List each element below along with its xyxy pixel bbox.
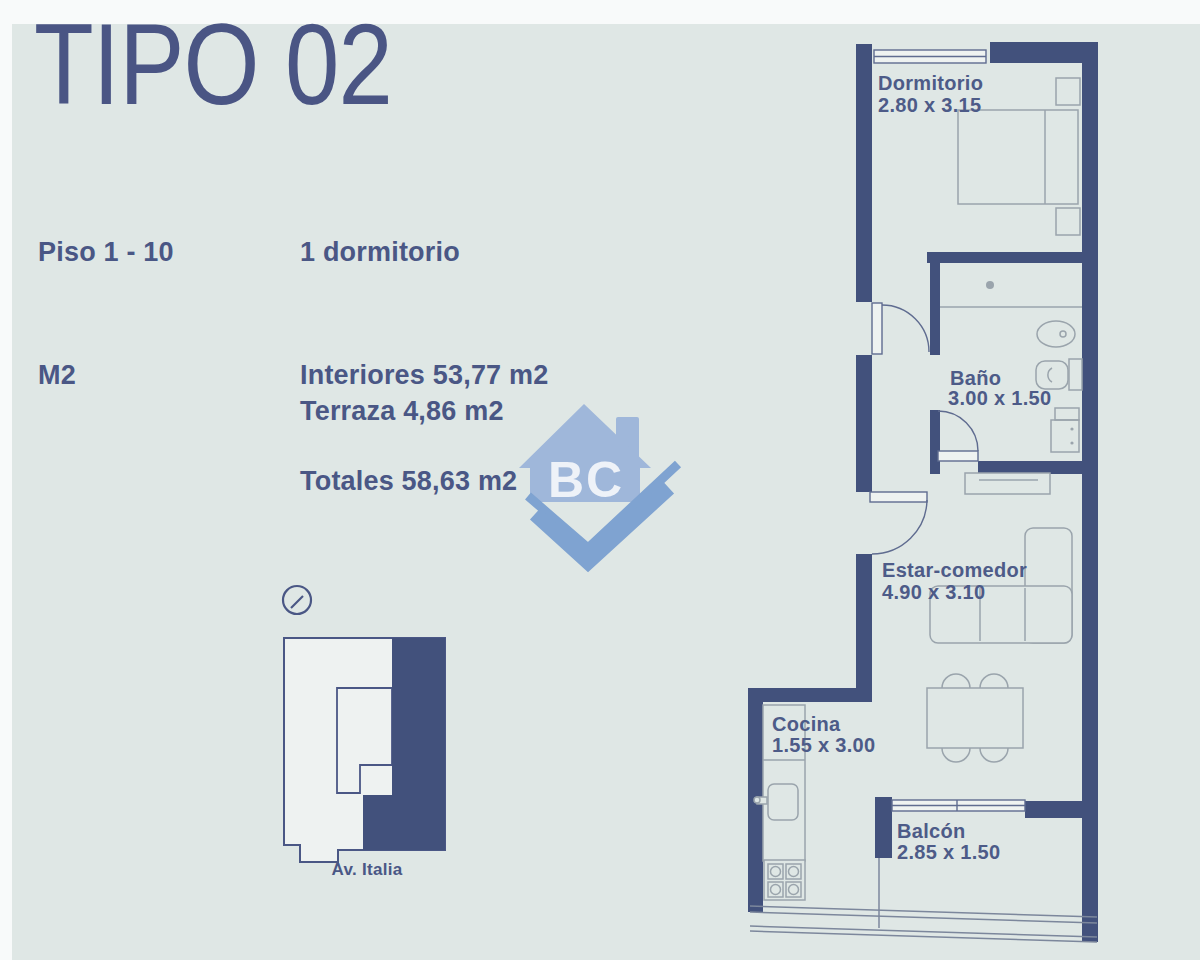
burner-ring [771, 867, 781, 877]
toilet-detail [1048, 368, 1052, 382]
nightstand [1056, 78, 1080, 105]
door-arc-entry [872, 500, 927, 554]
wall-bath-bottom [978, 461, 1082, 474]
doors [870, 303, 978, 554]
label-balcon: Balcón [897, 820, 965, 842]
floor-plan: Dormitorio 2.80 x 3.15 Baño 3.00 x 1.50 … [748, 42, 1098, 942]
label-estar: Estar-comedor [882, 559, 1027, 581]
burner-ring [789, 885, 799, 895]
vanity [1051, 420, 1079, 452]
burner-ring [771, 885, 781, 895]
vanity-knob [1070, 427, 1073, 430]
door-leaf-bano [938, 451, 978, 461]
floorplan-page: { "header": { "title": "TIPO 02" }, "spe… [0, 0, 1200, 960]
wall-balcon-right [1025, 801, 1082, 818]
vanity-shelf [1055, 408, 1079, 420]
wall-cocina-top [748, 688, 872, 702]
wall-top [990, 42, 1098, 63]
wall-balcon-left-stub [875, 797, 892, 858]
logo-letters: BC [548, 452, 624, 508]
drawings-layer: BC [0, 0, 1200, 960]
wall-left-hall [856, 355, 872, 492]
sink-faucet-base [754, 797, 760, 803]
door-leaf-entry [870, 492, 927, 502]
bc-logo: BC [519, 404, 678, 562]
bed [958, 110, 1078, 204]
door-leaf-dormitorio [872, 303, 882, 354]
label-balcon-dims: 2.85 x 1.50 [897, 841, 1000, 863]
bidet-detail [1060, 331, 1066, 337]
label-dormitorio-dims: 2.80 x 3.15 [878, 94, 981, 116]
bidet [1037, 321, 1075, 347]
label-bano: Baño [950, 367, 1001, 389]
toilet-bowl [1036, 361, 1068, 389]
north-compass-icon [283, 586, 311, 614]
shower-drain-icon [986, 281, 994, 289]
north-compass-needle [291, 596, 303, 608]
wall-left-dormitorio [856, 44, 872, 302]
vanity-knob [1070, 441, 1073, 444]
railing-line [750, 931, 1097, 942]
wall-left-estar [856, 554, 872, 702]
dining-table [927, 688, 1023, 748]
nightstand [1056, 208, 1080, 235]
label-cocina-dims: 1.55 x 3.00 [772, 734, 875, 756]
wall-bath-bottom-left [930, 461, 940, 474]
door-arc-bano [938, 411, 978, 451]
wall-hall-bath-upper [930, 252, 940, 355]
label-estar-dims: 4.90 x 3.10 [882, 581, 985, 603]
railing-line [750, 926, 1097, 937]
sideboard [965, 473, 1050, 494]
estar-furniture [927, 473, 1072, 762]
label-cocina: Cocina [772, 713, 841, 735]
keyplan [283, 586, 445, 862]
wall-dormitorio-bath [927, 252, 1082, 263]
railing-line [750, 912, 1097, 923]
label-bano-dims: 3.00 x 1.50 [948, 387, 1051, 409]
burner-ring [789, 867, 799, 877]
toilet-tank [1069, 359, 1082, 390]
wall-right [1082, 42, 1098, 942]
door-arc-dormitorio [882, 305, 929, 352]
kitchen-sink [768, 784, 798, 820]
railing-line [750, 906, 1097, 917]
label-dormitorio: Dormitorio [878, 72, 983, 94]
